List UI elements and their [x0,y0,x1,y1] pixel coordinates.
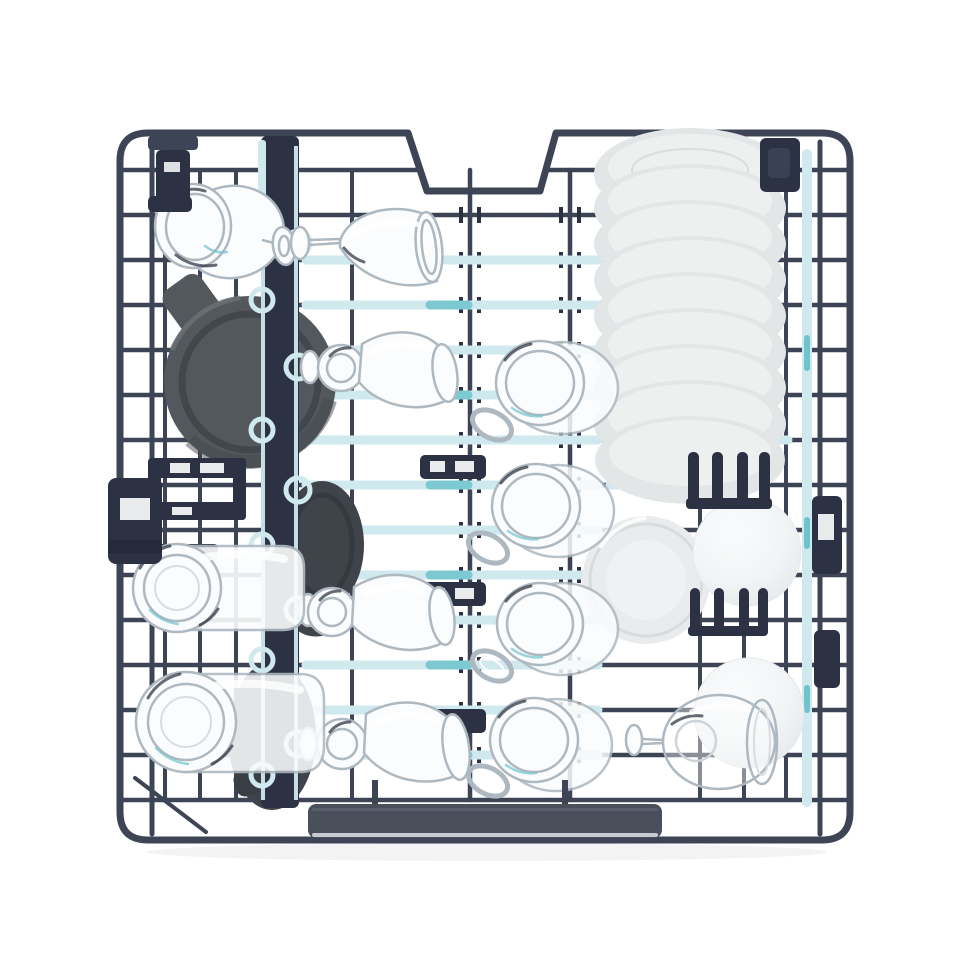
dishwasher-rack-photo [0,0,970,971]
clip-top-left [148,136,198,212]
wine-glass-2 [291,209,446,285]
ground-shadow [147,843,827,861]
plate-stack [594,128,786,504]
clip-right-1 [812,496,842,574]
glass-mug-3 [467,583,618,687]
clip-right-2 [814,630,840,688]
clip-top-right [760,138,800,192]
rack-illustration [0,0,970,971]
tumbler-2 [136,672,324,772]
latch-left [108,478,162,564]
fold-tines-left [148,458,246,560]
rack-handle [308,780,662,838]
